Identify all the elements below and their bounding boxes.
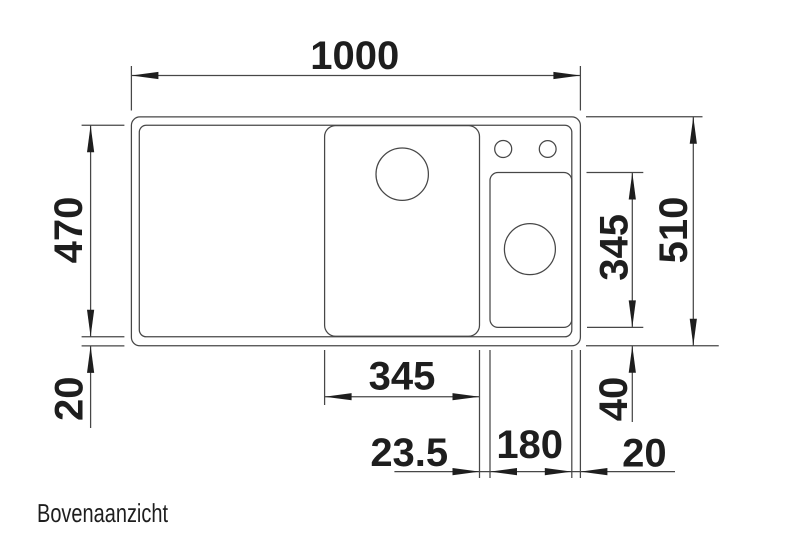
svg-text:470: 470 <box>47 197 91 264</box>
svg-text:180: 180 <box>496 423 563 467</box>
svg-text:Bovenaanzicht: Bovenaanzicht <box>37 498 169 528</box>
svg-text:20: 20 <box>48 377 92 422</box>
svg-text:23.5: 23.5 <box>370 431 448 475</box>
svg-text:1000: 1000 <box>310 34 399 78</box>
svg-text:510: 510 <box>652 197 696 264</box>
svg-text:345: 345 <box>593 214 637 281</box>
svg-text:40: 40 <box>592 377 636 422</box>
svg-text:345: 345 <box>369 355 436 399</box>
svg-text:20: 20 <box>622 431 667 475</box>
